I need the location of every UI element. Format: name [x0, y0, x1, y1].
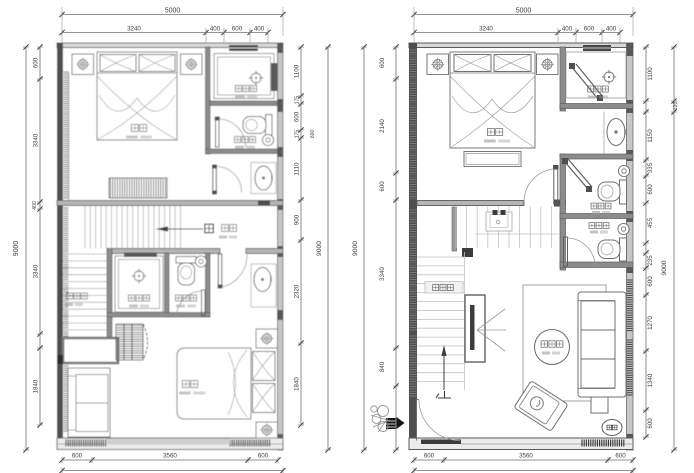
svg-text:235: 235: [647, 255, 654, 266]
svg-text:175: 175: [295, 130, 301, 139]
svg-text:1840: 1840: [294, 377, 301, 391]
svg-text:600: 600: [647, 184, 654, 195]
svg-text:1100: 1100: [294, 64, 301, 78]
svg-text:400: 400: [606, 25, 617, 32]
svg-text:5000: 5000: [165, 7, 181, 14]
svg-text:600: 600: [72, 453, 83, 460]
svg-text:600: 600: [310, 130, 316, 139]
svg-text:1150: 1150: [647, 129, 654, 143]
svg-text:3340: 3340: [33, 264, 40, 278]
svg-text:120: 120: [673, 102, 679, 111]
svg-text:900: 900: [294, 214, 301, 225]
svg-text:600: 600: [258, 453, 269, 460]
svg-text:600: 600: [232, 25, 243, 32]
svg-text:1840: 1840: [33, 379, 40, 393]
svg-text:9000: 9000: [661, 260, 668, 275]
svg-text:600: 600: [294, 111, 301, 122]
svg-text:5000: 5000: [516, 7, 532, 14]
svg-text:1100: 1100: [647, 67, 654, 81]
svg-text:400: 400: [210, 25, 221, 32]
svg-text:1340: 1340: [647, 373, 654, 387]
svg-text:600: 600: [424, 453, 435, 460]
svg-text:455: 455: [647, 217, 654, 228]
svg-text:175: 175: [295, 96, 301, 105]
svg-text:9000: 9000: [352, 241, 359, 256]
svg-text:1110: 1110: [294, 162, 301, 175]
svg-text:840: 840: [379, 361, 386, 372]
svg-text:600: 600: [615, 453, 626, 460]
svg-text:3560: 3560: [519, 453, 533, 460]
svg-text:400: 400: [562, 25, 573, 32]
svg-text:9000: 9000: [316, 241, 323, 256]
svg-text:3560: 3560: [163, 453, 177, 460]
svg-text:600: 600: [584, 25, 595, 32]
svg-text:3340: 3340: [379, 267, 386, 281]
svg-text:3240: 3240: [127, 25, 141, 32]
svg-text:400: 400: [254, 25, 265, 32]
svg-text:600: 600: [379, 57, 386, 68]
svg-text:2140: 2140: [379, 119, 386, 133]
svg-text:335: 335: [647, 162, 654, 173]
svg-text:1270: 1270: [647, 316, 654, 330]
svg-text:2320: 2320: [294, 284, 301, 298]
svg-text:600: 600: [647, 418, 654, 429]
svg-text:600: 600: [33, 57, 40, 68]
svg-text:600: 600: [647, 276, 654, 287]
svg-text:400: 400: [32, 201, 38, 210]
svg-text:9000: 9000: [13, 241, 20, 257]
svg-text:600: 600: [379, 181, 386, 192]
svg-text:3240: 3240: [479, 25, 493, 32]
svg-text:3340: 3340: [33, 133, 40, 147]
